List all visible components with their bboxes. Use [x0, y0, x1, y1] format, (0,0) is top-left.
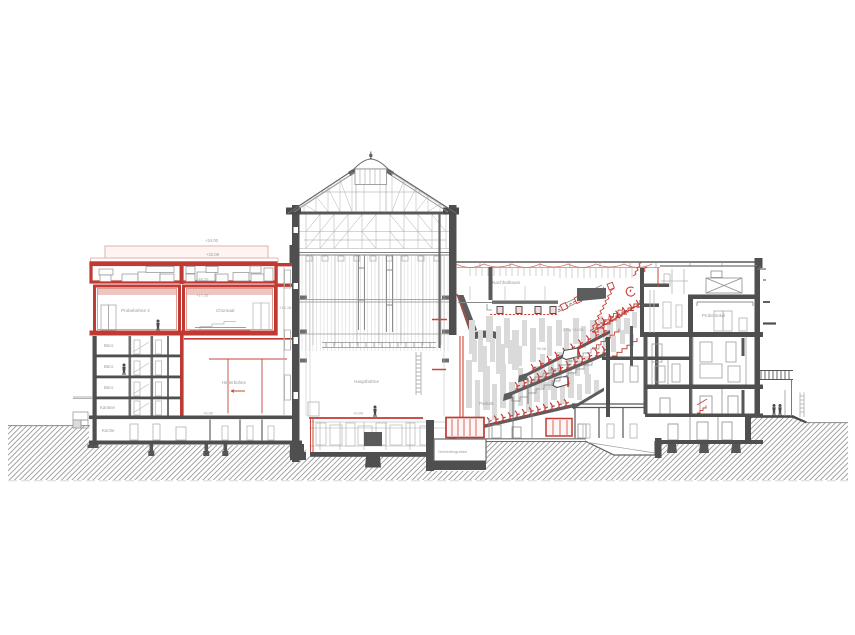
- svg-text:Parkett: Parkett: [479, 401, 494, 406]
- svg-text:2.Rg +11.56: 2.Rg +11.56: [563, 328, 584, 332]
- svg-text:Chorsaal: Chorsaal: [216, 308, 234, 313]
- svg-text:+0.00: +0.00: [353, 411, 364, 416]
- svg-text:+0.00: +0.00: [203, 411, 214, 416]
- svg-text:1.Rg: 1.Rg: [548, 368, 556, 372]
- svg-text:+22.08: +22.08: [206, 252, 220, 257]
- svg-text:Nachhallraum: Nachhallraum: [492, 280, 521, 285]
- svg-text:Orchestergraben: Orchestergraben: [438, 449, 467, 454]
- svg-text:Hinterbühne: Hinterbühne: [222, 380, 246, 385]
- svg-text:+24.00: +24.00: [205, 238, 219, 243]
- svg-text:Probebühne 2: Probebühne 2: [121, 308, 150, 313]
- svg-text:+8.06: +8.06: [536, 346, 547, 351]
- svg-text:+14.16: +14.16: [279, 305, 292, 310]
- svg-text:Küche: Küche: [102, 428, 115, 433]
- svg-text:Hauptbühne: Hauptbühne: [354, 379, 379, 384]
- svg-text:+18.10: +18.10: [196, 277, 209, 282]
- svg-text:+17.26: +17.26: [196, 293, 209, 298]
- svg-text:Büro: Büro: [104, 364, 114, 369]
- svg-text:Büro: Büro: [104, 343, 114, 348]
- svg-text:Kantine: Kantine: [100, 405, 115, 410]
- svg-text:Büro: Büro: [104, 385, 114, 390]
